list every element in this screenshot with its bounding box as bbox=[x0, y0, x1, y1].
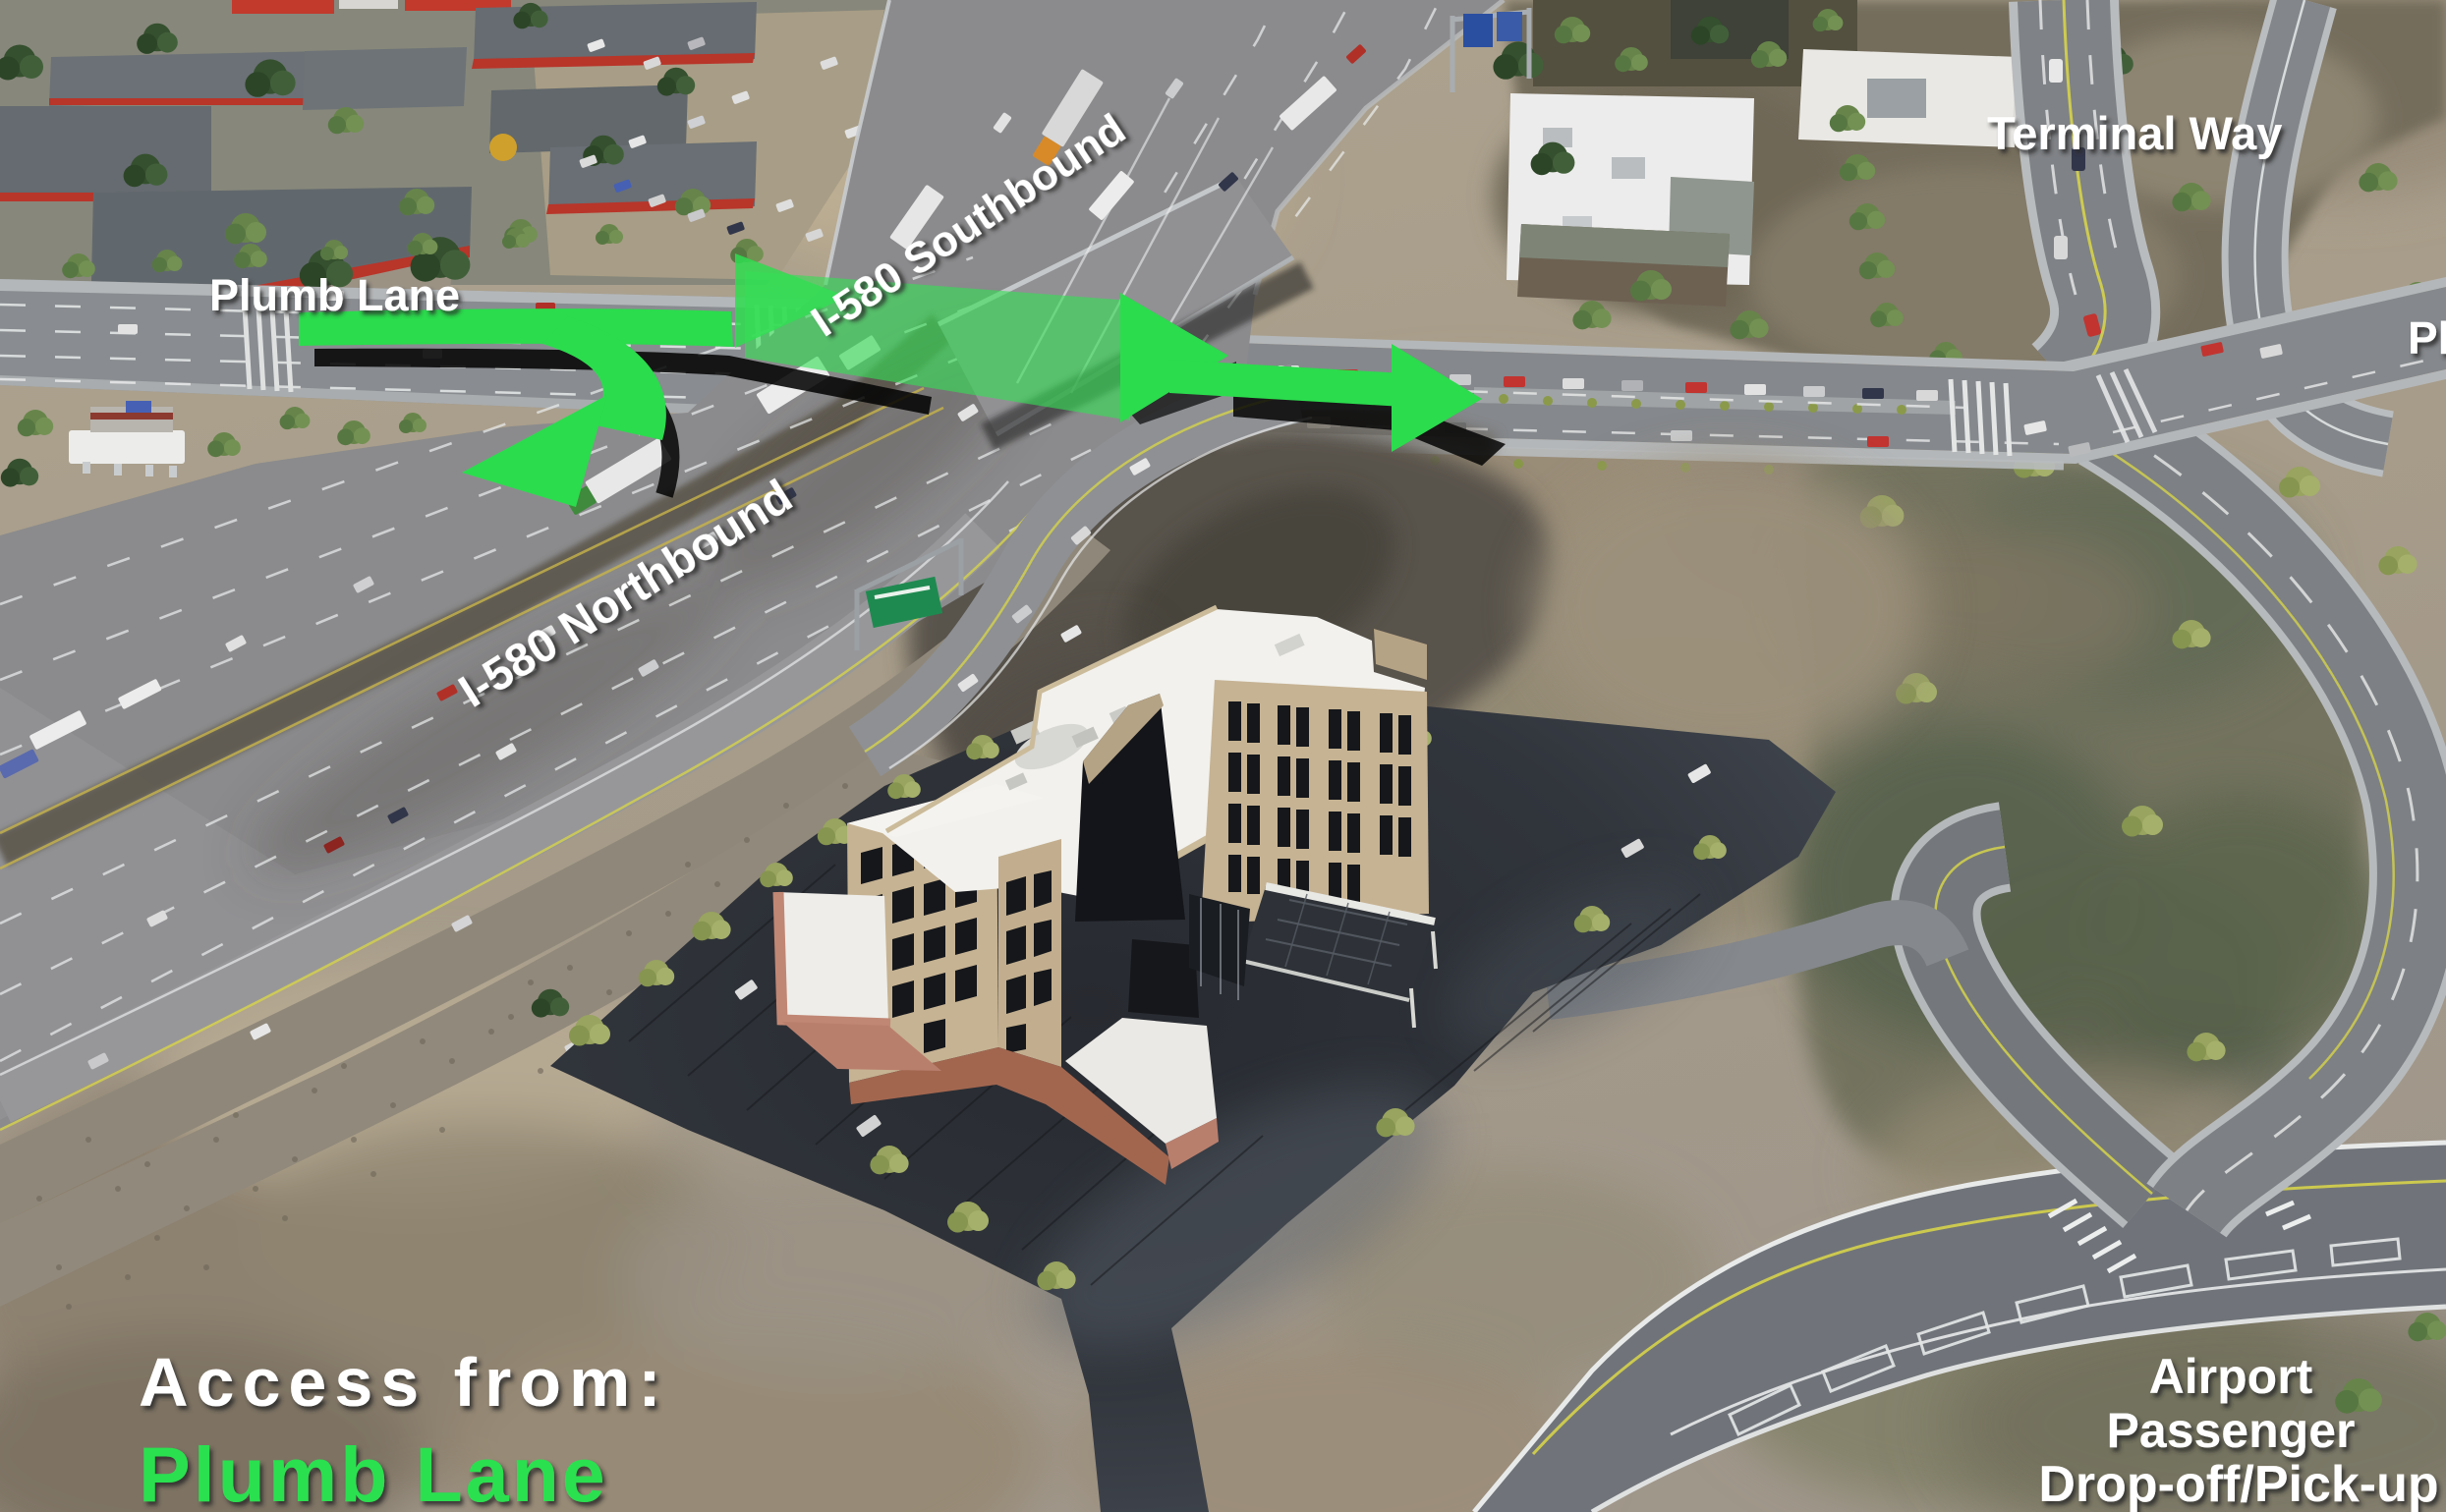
svg-text:Terminal Way: Terminal Way bbox=[1987, 107, 2282, 159]
svg-text:Passenger: Passenger bbox=[2107, 1403, 2356, 1458]
svg-text:Pl: Pl bbox=[2408, 312, 2446, 364]
svg-text:Drop-off/Pick-up: Drop-off/Pick-up bbox=[2038, 1456, 2438, 1512]
svg-text:Airport: Airport bbox=[2149, 1349, 2313, 1404]
svg-text:Access from:: Access from: bbox=[139, 1344, 669, 1421]
svg-text:Plumb Lane: Plumb Lane bbox=[139, 1430, 608, 1512]
svg-text:Plumb Lane: Plumb Lane bbox=[209, 270, 460, 320]
